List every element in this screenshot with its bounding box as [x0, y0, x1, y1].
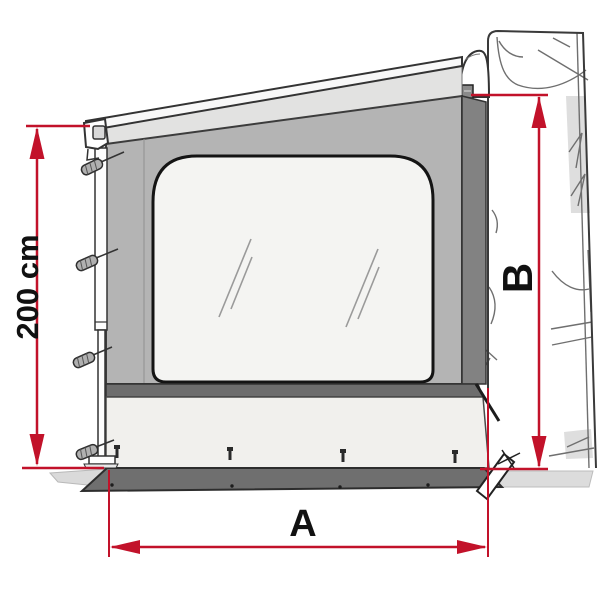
skirt-flap	[82, 468, 502, 491]
skirt-eyelet	[338, 485, 341, 488]
skirt-eyelet	[230, 484, 233, 487]
label-panel-height: 200 cm	[10, 234, 45, 339]
leg-upper-tube	[95, 148, 107, 330]
skirt-eyelet	[426, 483, 429, 486]
diagram-drawing: 200 cm B A	[0, 0, 600, 600]
panel-edge-strip	[462, 96, 486, 384]
panel-bottom-band	[106, 384, 483, 397]
leg-foot	[89, 456, 115, 464]
panel-window	[153, 156, 433, 382]
side-panel	[86, 57, 489, 468]
label-mount-height-b: B	[494, 263, 541, 293]
height-arrow-down	[30, 434, 45, 466]
awning-side-panel-diagram: 200 cm B A	[0, 0, 600, 600]
end-cap-knob	[93, 126, 105, 139]
panel-apron	[106, 397, 489, 468]
width-arrow-left	[110, 540, 140, 554]
awning-case	[461, 51, 489, 98]
height-arrow-up	[30, 127, 45, 159]
skirt-eyelet	[110, 483, 113, 486]
width-arrow-right	[457, 540, 487, 554]
label-awning-width-a: A	[289, 503, 316, 545]
ground-skirt	[82, 468, 502, 491]
leg-lower-tube	[98, 330, 105, 458]
peg	[72, 351, 96, 369]
